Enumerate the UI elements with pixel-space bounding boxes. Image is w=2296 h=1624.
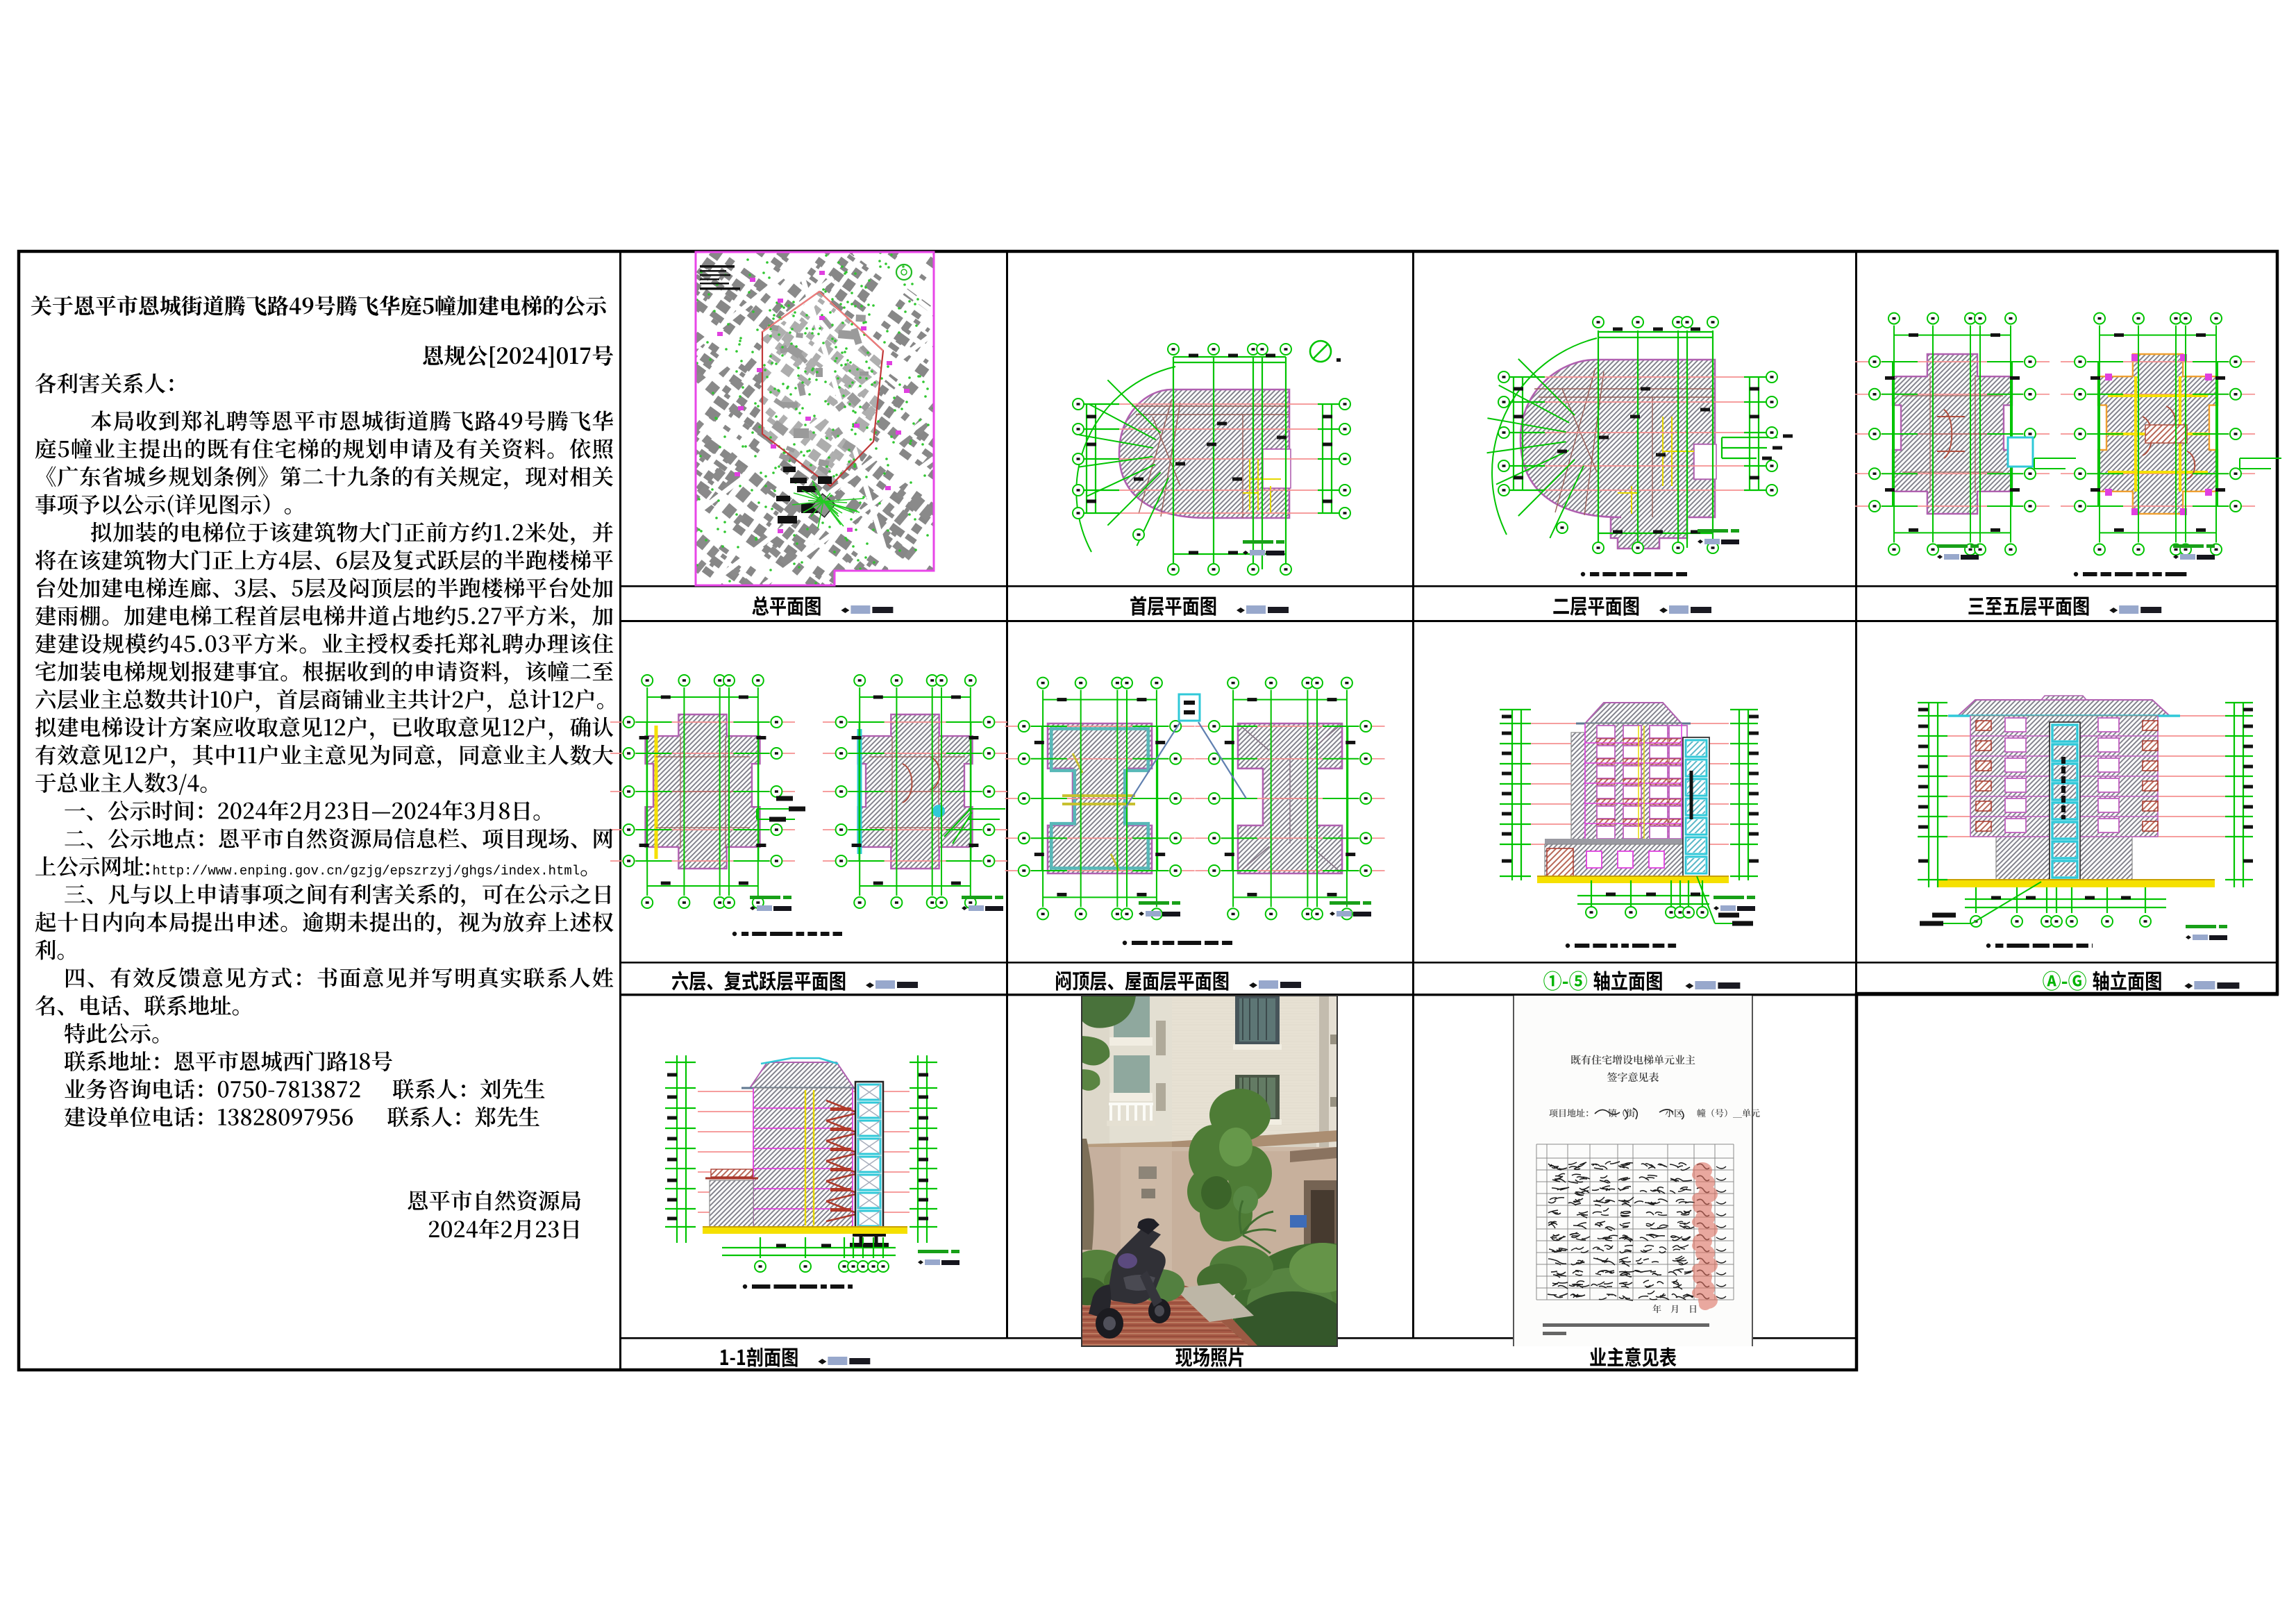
svg-text:http://www.enping.gov.cn/gzjg/: http://www.enping.gov.cn/gzjg/epszrzyj/g… bbox=[153, 864, 580, 879]
